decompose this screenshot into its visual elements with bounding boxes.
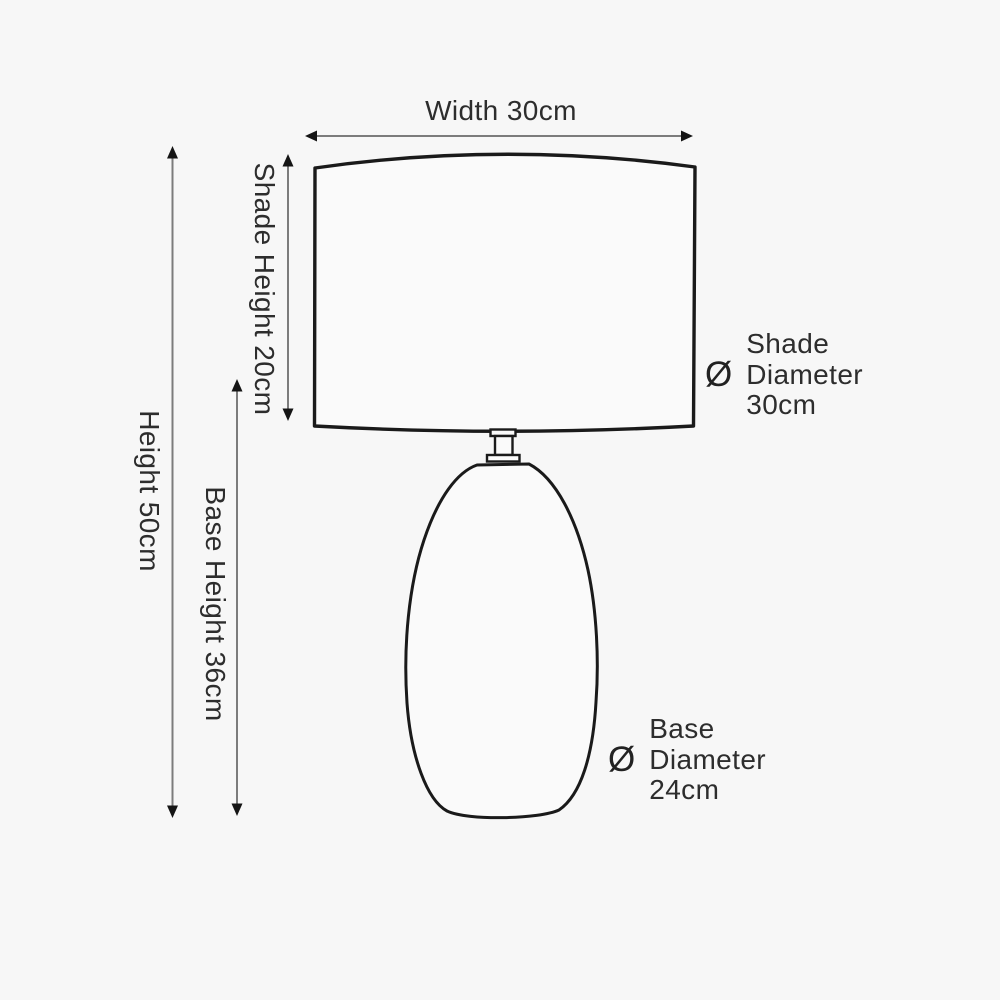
arrow-head-up [283, 154, 294, 167]
base-diameter-label: Ø Base Diameter 24cm [608, 714, 766, 806]
base-diameter-line-3: 24cm [649, 775, 766, 806]
shade-diameter-line-1: Shade [746, 329, 863, 360]
base-diameter-text: Base Diameter 24cm [649, 714, 766, 806]
lamp-neck [487, 430, 520, 462]
overall-height-dimension-arrow [167, 146, 178, 818]
arrow-head-down [167, 806, 178, 819]
base-diameter-line-2: Diameter [649, 745, 766, 776]
arrow-head-right [681, 131, 693, 142]
arrow-head-down [283, 409, 294, 422]
arrow-head-down [232, 804, 243, 817]
base-height-dimension-arrow [232, 379, 243, 816]
lamp-base-outline [406, 464, 598, 818]
shade-height-dimension-arrow [283, 154, 294, 421]
shade-diameter-text: Shade Diameter 30cm [746, 329, 863, 421]
lamp-dimension-diagram: Width 30cm Height 50cm Base Height 36cm … [0, 0, 1000, 1000]
arrow-head-up [167, 146, 178, 159]
width-dimension-label: Width 30cm [425, 95, 577, 127]
overall-height-dimension-label: Height 50cm [133, 410, 165, 572]
width-dimension-arrow [305, 131, 693, 142]
neck-stem [495, 436, 513, 455]
diameter-symbol-icon: Ø [705, 357, 732, 392]
arrow-head-left [305, 131, 317, 142]
neck-flange [487, 455, 520, 462]
base-diameter-line-1: Base [649, 714, 766, 745]
base-height-dimension-label: Base Height 36cm [199, 486, 231, 721]
arrow-head-up [232, 379, 243, 392]
shade-diameter-line-2: Diameter [746, 360, 863, 391]
shade-diameter-label: Ø Shade Diameter 30cm [705, 329, 863, 421]
lamp-shade-outline [315, 154, 696, 431]
shade-height-dimension-label: Shade Height 20cm [248, 163, 280, 416]
shade-diameter-line-3: 30cm [746, 390, 863, 421]
diameter-symbol-icon: Ø [608, 742, 635, 777]
